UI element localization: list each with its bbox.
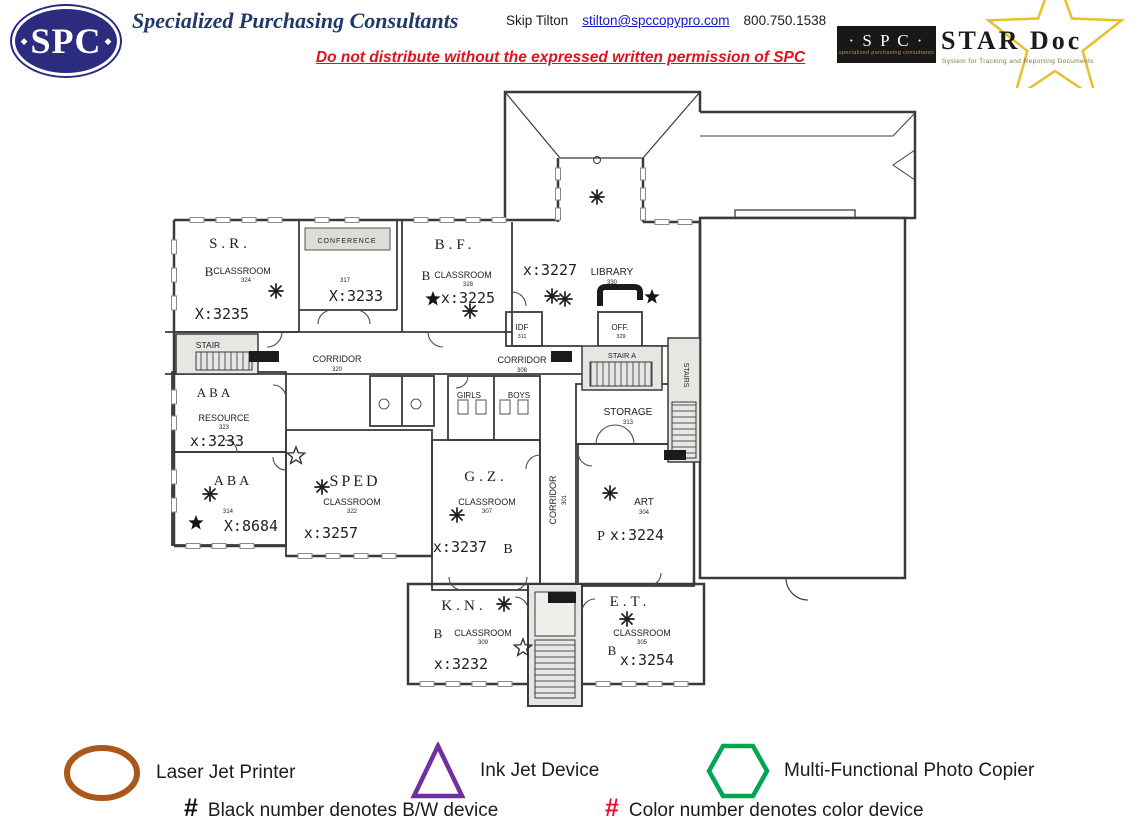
stardoc-spc-text: · S P C ·	[849, 32, 925, 51]
legend-note-bw: # Black number denotes B/W device	[184, 796, 498, 822]
room-number: 324	[241, 278, 252, 284]
room-title: B.F.	[435, 237, 476, 253]
floor-plan: S.R. B CLASSROOM 324 X:3235 CONFERENCE 3…	[150, 85, 950, 720]
room-extension: x:3233	[190, 432, 244, 450]
room-title: S.R.	[209, 236, 251, 252]
room-number: 314	[223, 509, 234, 515]
room-number: 317	[340, 278, 351, 284]
device-asterisk-icon	[497, 597, 511, 611]
room-type: CLASSROOM	[454, 628, 512, 638]
device-letter: B	[608, 643, 617, 658]
stardoc-spc-subtext: specialized purchasing consultants	[839, 51, 934, 57]
stair-label: STAIR	[196, 340, 220, 350]
room-type: CLASSROOM	[213, 266, 271, 276]
room-title: LIBRARY	[591, 267, 634, 278]
room-title: SPED	[329, 473, 380, 490]
legend-note-text: Black number denotes B/W device	[208, 800, 498, 822]
room-number: 309	[478, 640, 489, 646]
device-asterisk-icon	[558, 292, 572, 306]
legend-laser-jet: Laser Jet Printer	[62, 744, 295, 802]
room-number: 307	[482, 509, 493, 515]
stardoc-title: STAR Doc	[941, 26, 1082, 56]
diamond-icon: ◆	[21, 37, 28, 46]
device-letter: B	[422, 268, 431, 283]
room-number: 304	[639, 510, 650, 516]
room-extension: x:3232	[434, 655, 488, 673]
room-extension: x:3224	[610, 526, 664, 544]
room-type: CLASSROOM	[613, 628, 671, 638]
stardoc-spc-box: · S P C · specialized purchasing consult…	[837, 26, 936, 63]
room-title: CONFERENCE	[317, 238, 376, 245]
spc-logo-oval: ◆ SPC ◆	[15, 9, 117, 73]
corridor-label: CORRIDOR	[313, 354, 362, 364]
device-asterisk-icon	[315, 480, 329, 494]
room-extension: X:8684	[224, 517, 278, 535]
corridor-label: CORRIDOR	[498, 355, 547, 365]
room-title: ABA	[197, 385, 233, 400]
legend-ink-jet: Ink Jet Device	[410, 742, 599, 800]
contact-phone: 800.750.1538	[744, 13, 827, 28]
device-letter: P	[597, 529, 605, 544]
copier-hexagon-icon	[706, 742, 770, 800]
corridor-number: 301	[562, 494, 568, 505]
device-asterisk-icon	[203, 487, 217, 501]
device-asterisk-icon	[545, 289, 559, 303]
room-number: 328	[463, 282, 474, 288]
room-number: 311	[518, 334, 527, 340]
spc-logo-text: SPC	[30, 23, 101, 59]
room-number: 323	[219, 425, 230, 431]
diamond-icon: ◆	[105, 37, 112, 46]
room-type: CLASSROOM	[458, 497, 516, 507]
laser-jet-ellipse-icon	[62, 744, 142, 802]
room-number: 330	[607, 280, 618, 286]
stair-label: STAIR A	[608, 351, 636, 360]
room-type: RESOURCE	[198, 413, 249, 423]
room-title: K.N.	[441, 598, 486, 614]
room-extension: x:3254	[620, 651, 674, 669]
contact-name: Skip Tilton	[506, 13, 568, 28]
black-hash-icon: #	[184, 796, 198, 821]
room-title: STORAGE	[604, 407, 653, 418]
spc-logo: ◆ SPC ◆	[10, 4, 122, 78]
device-asterisk-icon	[450, 508, 464, 522]
distribution-warning: Do not distribute without the expressed …	[303, 49, 818, 67]
device-star-outline-icon	[287, 447, 305, 464]
legend-label: Multi-Functional Photo Copier	[784, 760, 1034, 782]
room-number: 329	[616, 334, 625, 340]
room-title: E.T.	[610, 594, 651, 610]
room-type: CLASSROOM	[323, 497, 381, 507]
door-swings	[225, 292, 661, 612]
plan-labels: S.R. B CLASSROOM 324 X:3235 CONFERENCE 3…	[190, 236, 689, 673]
legend-label: Laser Jet Printer	[156, 762, 295, 784]
stair-label: STAIRS	[682, 363, 689, 388]
room-number: 305	[637, 640, 648, 646]
device-star-icon	[644, 289, 659, 303]
device-star-icon	[188, 515, 203, 529]
device-asterisk-icon	[620, 612, 634, 626]
room-extension: x:3237	[433, 538, 487, 556]
room-title: ABA	[214, 474, 253, 489]
legend-mfp-copier: Multi-Functional Photo Copier	[706, 742, 1034, 800]
device-star-icon	[425, 291, 440, 305]
room-title: ART	[634, 497, 654, 508]
stardoc-logo: · S P C · specialized purchasing consult…	[935, 0, 1140, 88]
device-asterisk-icon	[603, 486, 617, 500]
room-number: 313	[623, 420, 634, 426]
room-type: CLASSROOM	[434, 270, 492, 280]
legend-note-text: Color number denotes color device	[629, 800, 924, 822]
device-asterisk-icon	[269, 284, 283, 298]
device-letter: B	[434, 626, 443, 641]
room-extension: X:3233	[329, 287, 383, 305]
red-hash-icon: #	[605, 796, 619, 821]
room-number: 322	[347, 509, 358, 515]
room-title: IDF	[516, 323, 529, 332]
legend-label: Ink Jet Device	[480, 760, 599, 782]
legend-note-color: # Color number denotes color device	[605, 796, 924, 822]
corridor-number: 320	[332, 367, 343, 373]
contact-email-link[interactable]: stilton@spccopypro.com	[582, 13, 729, 28]
floor-plan-svg: S.R. B CLASSROOM 324 X:3235 CONFERENCE 3…	[150, 85, 950, 720]
device-asterisk-icon	[590, 190, 604, 204]
company-title: Specialized Purchasing Consultants	[132, 8, 458, 34]
room-title: GIRLS	[457, 391, 481, 400]
room-extension: x:3257	[304, 524, 358, 542]
room-extension: x:3225	[441, 289, 495, 307]
room-extension: x:3227	[523, 261, 577, 279]
room-title: G.Z.	[464, 469, 508, 485]
stardoc-subtitle: System for Tracking and Reporting Docume…	[942, 58, 1094, 65]
contact-row: Skip Tilton stilton@spccopypro.com 800.7…	[506, 13, 826, 28]
ink-jet-triangle-icon	[410, 742, 466, 800]
room-title: OFF.	[611, 323, 628, 332]
corridor-number: 308	[517, 368, 528, 374]
corridor-label: CORRIDOR	[548, 475, 558, 524]
room-extension: X:3235	[195, 305, 249, 323]
room-title: BOYS	[508, 391, 530, 400]
device-letter: B	[503, 542, 512, 557]
